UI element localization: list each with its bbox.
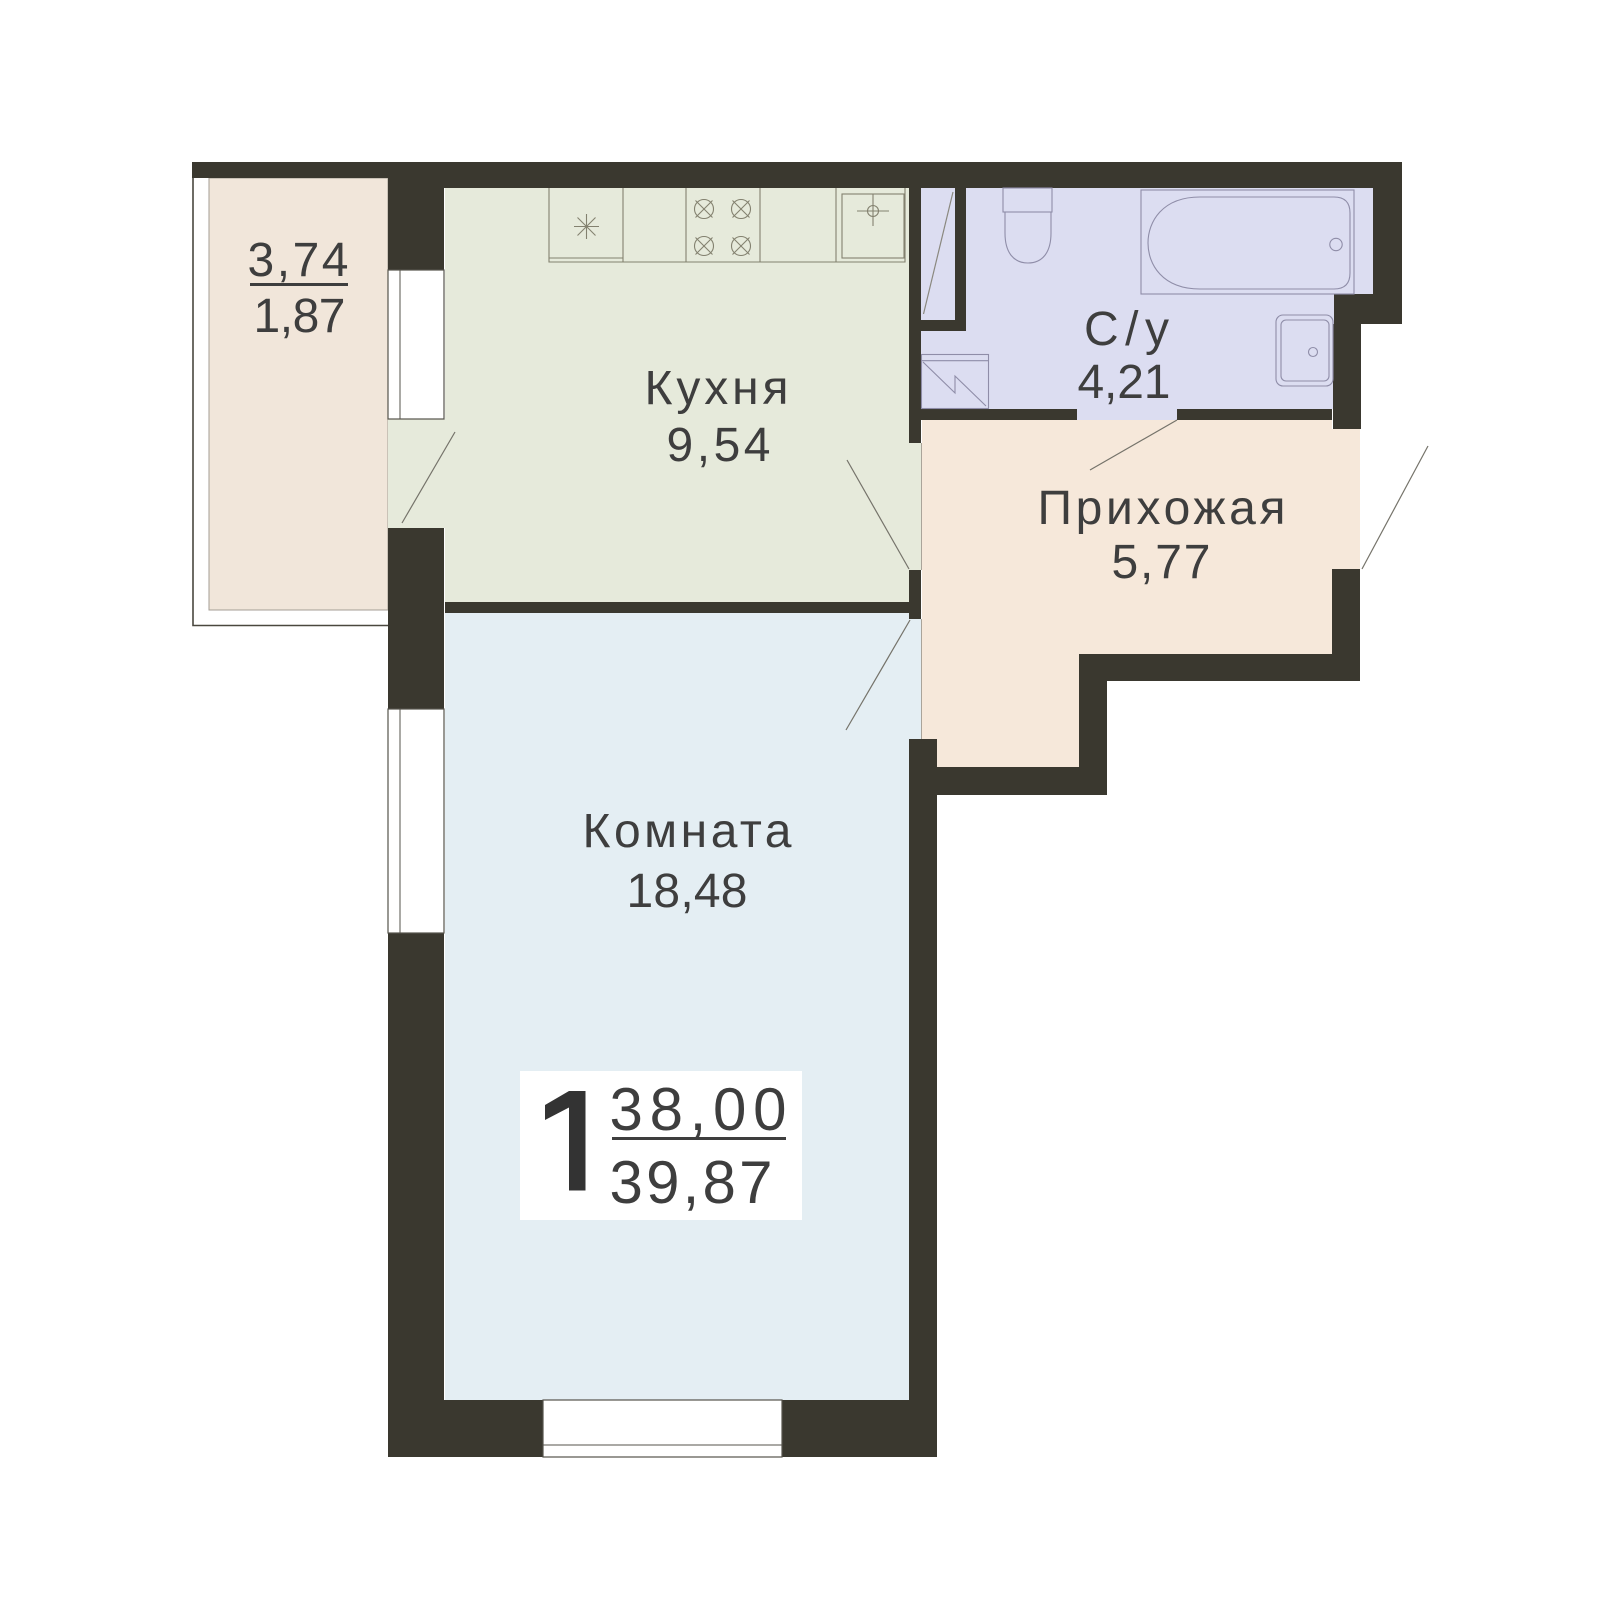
svg-text:С/у: С/у [1084,303,1169,356]
svg-text:9,54: 9,54 [667,419,771,472]
svg-text:18,48: 18,48 [627,865,748,918]
svg-text:1,87: 1,87 [254,290,346,343]
svg-text:5,77: 5,77 [1112,536,1211,589]
svg-text:38,00: 38,00 [610,1076,787,1143]
svg-text:4,21: 4,21 [1078,356,1171,409]
svg-text:39,87: 39,87 [610,1149,773,1216]
svg-text:Комната: Комната [583,805,792,858]
svg-text:Кухня: Кухня [645,362,789,415]
svg-text:3,74: 3,74 [248,234,349,287]
